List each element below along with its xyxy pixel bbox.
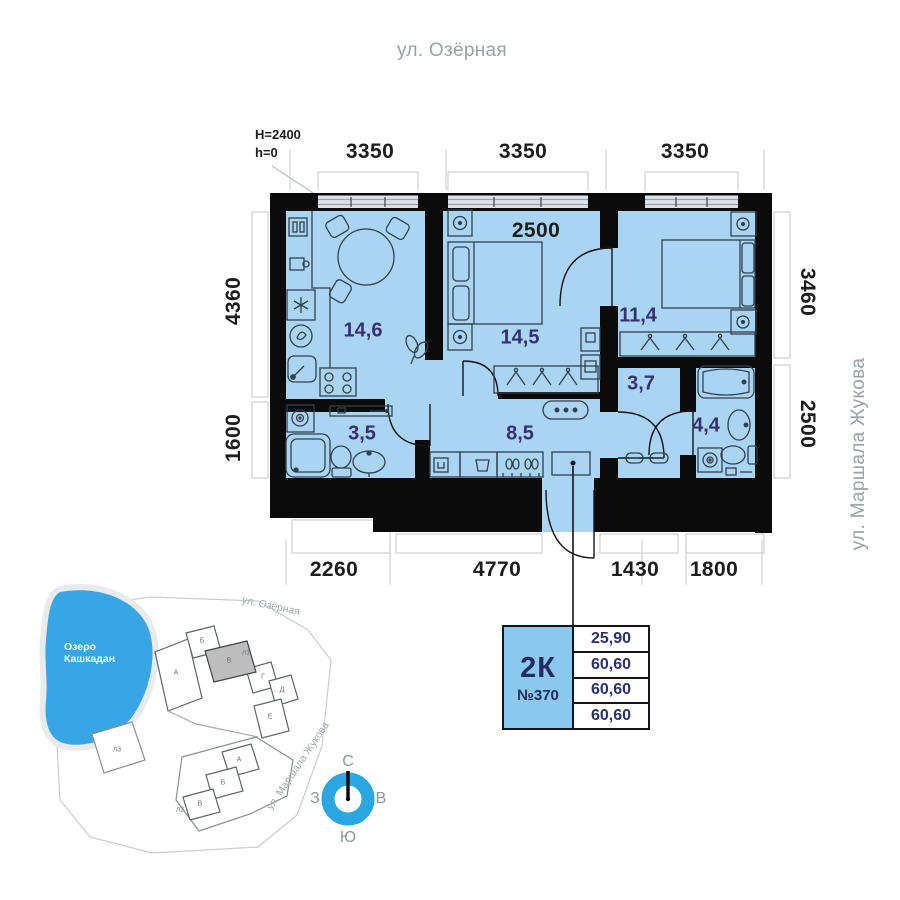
compass-south-label: Ю [340,829,356,847]
apartment-info-card: 2К №370 25,90 60,60 60,60 60,60 [502,625,650,730]
dim-top-1: 3350 [346,140,394,164]
building-letter: Б [200,638,205,645]
building-letter: А [237,757,242,764]
street-label-right: ул. Маршала Жукова [848,358,870,550]
lake-label-line2: Кашкадан [64,653,115,665]
dim-left-1: 4360 [222,277,246,325]
height-note-line2: h=0 [255,145,278,160]
dim-bottom-4: 1800 [690,558,738,582]
area-kitchen: 14,6 [344,320,383,343]
area-value-row: 60,60 [574,653,648,679]
apartment-number: №370 [517,687,559,704]
dim-inner: 2500 [512,219,560,243]
site-map [45,590,331,853]
window-bedroom1 [448,193,588,211]
compass [328,771,368,819]
area-value-row: 60,60 [574,704,648,728]
area-hall: 8,5 [506,423,534,446]
building-cluster-1 [155,626,298,738]
building-letter: Е [268,714,273,721]
apartment-type-box: 2К №370 [504,627,574,728]
lake-label-line1: Озеро [64,641,115,653]
area-bathroom2: 4,4 [692,415,720,438]
floor-plan-graphic [0,0,900,900]
building-letter: Б [221,780,226,787]
dim-bottom-3: 1430 [611,558,659,582]
dim-bottom-2: 4770 [473,558,521,582]
building-label-l1: л1 [242,650,250,657]
dim-right-1: 3460 [795,268,819,316]
area-corridor: 3,7 [627,373,655,396]
dim-left-2: 1600 [222,414,246,462]
dim-bottom-1: 2260 [310,558,358,582]
area-bathroom1: 3,5 [348,423,376,446]
window-kitchen [318,193,418,211]
windows [318,193,738,211]
building-label-l2: л2 [176,807,184,814]
area-bedroom1: 14,5 [501,327,540,350]
area-value-row: 60,60 [574,679,648,705]
window-bedroom2 [645,193,738,211]
dim-top-3: 3350 [661,140,709,164]
compass-center-dot [346,797,350,801]
building-letter: Г [261,674,265,681]
compass-north-label: С [342,753,354,771]
height-note-line1: H=2400 [255,127,301,142]
area-value-row: 25,90 [574,627,648,653]
street-label-top: ул. Озёрная [397,40,507,62]
compass-east-label: В [376,790,387,808]
compass-west-label: З [310,790,320,808]
building-letter: В [227,658,232,665]
lake-label: Озеро Кашкадан [64,641,115,665]
lake [45,590,152,745]
apartment-type: 2К [520,652,556,685]
area-bedroom2: 11,4 [619,305,657,328]
dim-right-2: 2500 [795,400,819,448]
dim-top-2: 3350 [499,140,547,164]
floorplan-page: { "streets": { "top": "ул. Озёрная", "ri… [0,0,900,900]
building-cluster-2 [176,737,293,831]
building-letter: В [198,801,203,808]
apartment-area-table: 25,90 60,60 60,60 60,60 [574,627,648,728]
building-label-l3: л3 [113,747,121,754]
building-letter: А [174,670,179,677]
building-letter: Д [280,687,285,694]
